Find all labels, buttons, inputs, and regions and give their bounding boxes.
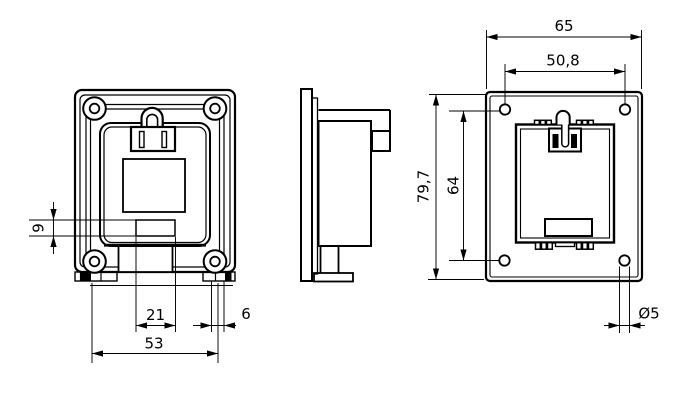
dim-label-53: 53 <box>144 335 163 353</box>
side-hook <box>372 131 390 151</box>
dim-64: 64 <box>444 111 500 261</box>
left-foot-section <box>81 272 92 281</box>
drawing-canvas: 9 21 6 53 65 <box>0 0 695 400</box>
dim-label-9: 9 <box>30 223 48 233</box>
hole-bore <box>210 104 220 114</box>
hole-bore <box>210 257 220 267</box>
center-tab <box>556 243 575 247</box>
tooth <box>589 120 594 124</box>
hole <box>619 255 629 265</box>
tooth <box>583 243 588 250</box>
rear-dimensions: 65 50,8 79,7 64 Ø5 <box>415 17 660 333</box>
tooth <box>577 120 582 124</box>
tooth <box>547 120 552 124</box>
dim-label-65: 65 <box>554 17 573 35</box>
rear-label-recess <box>545 219 592 236</box>
tooth <box>577 243 582 250</box>
rear-view <box>486 92 642 281</box>
side-body <box>319 121 372 246</box>
latch-shackle-inner <box>147 114 158 127</box>
hole-bore <box>90 257 100 267</box>
side-base-plate <box>314 273 353 282</box>
rear-latch-dome <box>557 111 570 125</box>
rear-latch-slot <box>553 134 559 148</box>
tooth <box>589 243 594 250</box>
dim-label-6: 6 <box>241 305 251 323</box>
tooth <box>536 243 541 250</box>
tooth <box>548 243 553 250</box>
tooth <box>542 243 547 250</box>
hole <box>499 255 509 265</box>
tooth <box>535 120 540 124</box>
dim-label-79-7: 79,7 <box>415 170 433 203</box>
dim-label-dia5: Ø5 <box>638 305 659 323</box>
dim-6: 6 <box>193 282 251 333</box>
rear-latch-slot <box>571 134 577 148</box>
tooth <box>583 120 588 124</box>
dim-label-64: 64 <box>444 176 462 195</box>
front-view <box>75 90 235 286</box>
hole-bore <box>90 104 100 114</box>
tooth <box>541 120 546 124</box>
hole <box>500 104 510 114</box>
side-view <box>301 89 390 282</box>
technical-drawing: 9 21 6 53 65 <box>0 0 695 400</box>
rear-bottom-teeth <box>536 243 594 250</box>
dim-label-50-8: 50,8 <box>546 52 579 70</box>
latch-body <box>131 127 175 151</box>
right-foot-section <box>225 272 232 281</box>
bottom-tab-face <box>119 247 171 272</box>
rear-latch-pin <box>562 125 569 147</box>
side-flange-plate <box>301 89 312 281</box>
dim-label-21: 21 <box>146 306 165 324</box>
hole <box>620 104 630 114</box>
